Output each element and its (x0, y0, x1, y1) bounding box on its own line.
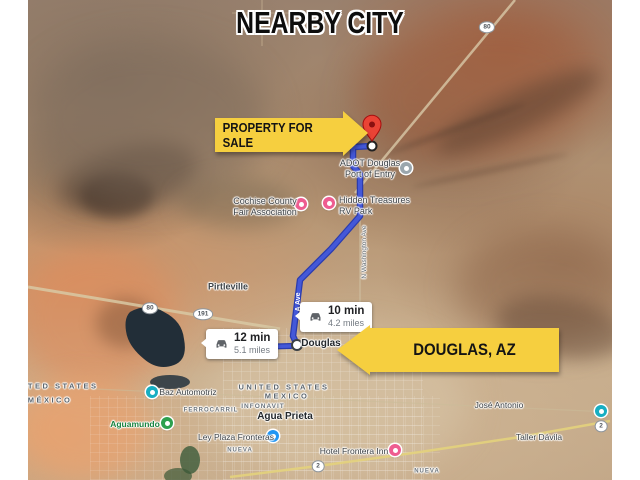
district-label-infonavit: INFONAVIT (241, 403, 285, 411)
city-callout-arrow: DOUGLAS, AZ (337, 325, 559, 375)
property-callout-text: PROPERTY FOR SALE (223, 118, 336, 152)
border-label-us-left: UNITED STATES (28, 382, 98, 391)
page-title: NEARBY CITY (236, 5, 404, 41)
road-label-washington-ave: N Washington Ave (361, 225, 369, 278)
poi-label-fairground: Cochise County Fair Association (233, 196, 297, 218)
poi-label-rv-park: Hidden Treasures RV Park (339, 195, 410, 217)
repair-shop-icon (595, 405, 607, 417)
poi-label-line: Fair Association (233, 207, 297, 217)
poi-label-taller-davila: Taller Dávila (516, 432, 562, 442)
route-duration: 12 min (234, 332, 270, 345)
city-label-pirtleville: Pirtleville (208, 282, 248, 293)
map-vector-layer (28, 0, 612, 480)
property-callout-arrow: PROPERTY FOR SALE (215, 105, 368, 160)
route-shield-191: 191 (193, 308, 213, 320)
poi-label-jose-antonio: José Antonio (475, 400, 524, 410)
car-icon (308, 311, 323, 322)
border-label-mx-left: MÉXICO (28, 396, 72, 405)
border-label-mx-center: MEXICO (265, 392, 310, 401)
border-label-us-center: UNITED STATES (239, 383, 330, 392)
city-label-agua-prieta: Agua Prieta (257, 411, 313, 423)
auto-shop-icon (146, 386, 158, 398)
district-label-ferrocarril: FERROCARRIL (184, 407, 239, 414)
route-shield-80: 80 (479, 21, 495, 33)
route-shield-2: 2 (312, 460, 325, 472)
poi-label-aguamundo: Aguamundo (110, 419, 160, 429)
rv-park-icon (323, 197, 335, 209)
poi-label-line: Cochise County (233, 196, 297, 206)
poi-label-hotel-frontera: Hotel Frontera Inn (320, 446, 389, 456)
park-icon (161, 417, 173, 429)
route-shield-2: 2 (595, 420, 608, 432)
satellite-map: ADOT Douglas Port of Entry Cochise Count… (28, 0, 612, 480)
poi-label-line: RV Park (339, 206, 372, 216)
port-of-entry-icon (400, 162, 412, 174)
poi-label-line: Hidden Treasures (339, 195, 410, 205)
car-icon (214, 338, 229, 349)
city-label-douglas: Douglas (301, 338, 340, 350)
district-label-nueva: NUEVA (227, 447, 253, 454)
route-shield-80: 80 (142, 302, 158, 314)
district-label-nueva: NUEVA (414, 468, 440, 475)
lake (126, 307, 185, 367)
route-info-bubble-west: 12 min 5.1 miles (206, 329, 278, 359)
poi-label-baz-automotriz: Baz Automotriz (159, 387, 216, 397)
poi-label-port-of-entry: ADOT Douglas Port of Entry (340, 158, 400, 180)
city-callout-text: DOUGLAS, AZ (381, 328, 547, 372)
route-distance: 5.1 miles (234, 345, 270, 355)
route-duration: 10 min (328, 305, 364, 318)
listing-image-frame: ADOT Douglas Port of Entry Cochise Count… (0, 0, 640, 480)
hotel-icon (389, 444, 401, 456)
poi-label-line: Port of Entry (345, 169, 395, 179)
destination-waypoint-circle (368, 142, 377, 151)
poi-label-ley-plaza: Ley Plaza Fronteras (198, 432, 274, 442)
